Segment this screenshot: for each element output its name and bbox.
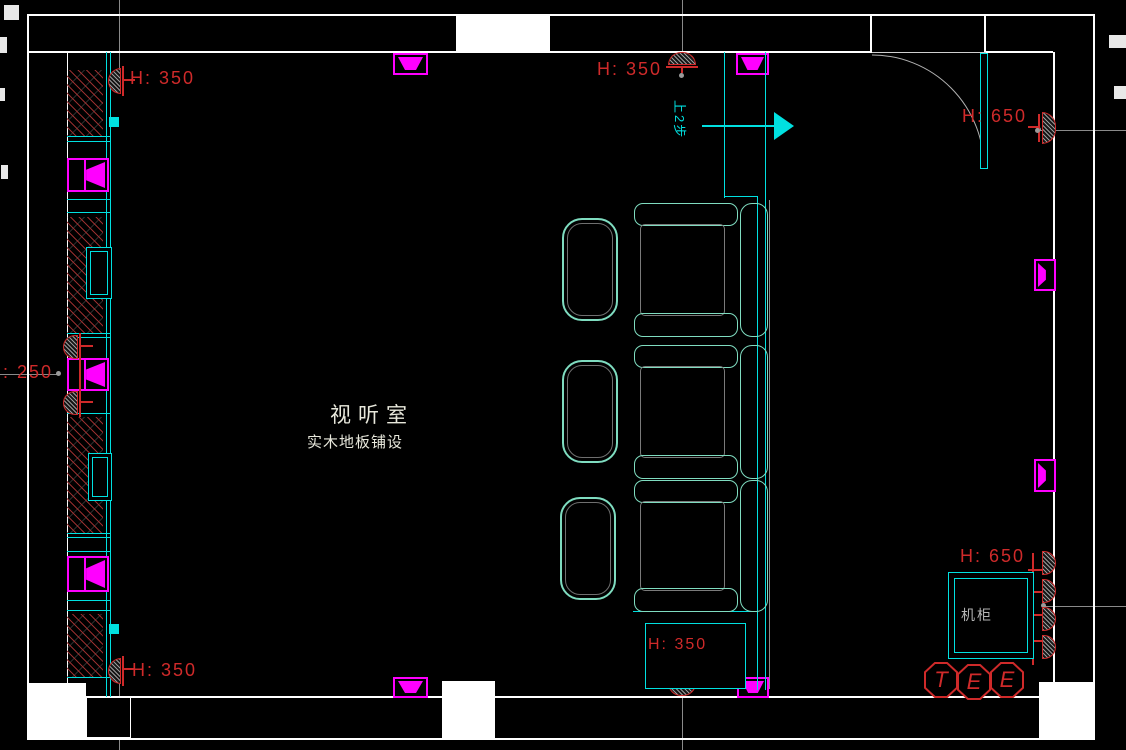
wall-hatch-block [67, 70, 103, 136]
edge-fragment [1109, 35, 1126, 48]
speaker-icon [1034, 459, 1056, 492]
edge-fragment [4, 5, 19, 20]
column-top-middle [456, 14, 550, 52]
edge-fragment [1114, 86, 1126, 99]
column-bottom-middle [442, 681, 495, 738]
speaker-icon [393, 53, 428, 75]
subwoofer-box [645, 623, 746, 689]
step-count-note: 上2步 [674, 100, 690, 144]
socket-icon-pair [63, 333, 95, 417]
speaker-icon [67, 556, 109, 592]
edge-fragment [0, 88, 5, 101]
shelf-line [67, 551, 110, 552]
wall-bottom-inner [27, 696, 1039, 698]
column-bottom-left [27, 683, 86, 738]
floor-note-label: 实木地板铺设 [307, 431, 403, 452]
tag-letter: E [967, 669, 982, 695]
switch-box [109, 624, 119, 634]
grid-line-vertical-left-top [119, 0, 120, 76]
cad-floorplan-canvas: 上2步 机柜 T E E H: 350 H: 350 H: 650 H: 250… [0, 0, 1126, 750]
grid-line-vertical-mid-bottom [682, 695, 683, 750]
socket-icon [1028, 110, 1058, 146]
height-label-top-left: H: 350 [130, 68, 195, 89]
wall-top-outer [27, 14, 1093, 16]
wall-hatch-block [67, 614, 103, 677]
tag-circle-t: T [924, 662, 958, 698]
tag-circle-e2: E [990, 662, 1024, 698]
wall-top-inner-right [986, 51, 1053, 53]
tag-letter: E [1000, 667, 1015, 693]
tag-circle-e1: E [957, 664, 991, 700]
height-label-left: H: 250 [0, 362, 53, 383]
left-wall-face-line [110, 52, 111, 697]
recliner-chair [634, 480, 768, 614]
height-label-top-right: H: 650 [962, 106, 1027, 127]
platform-back-line [769, 200, 770, 689]
shelf-line [67, 677, 110, 678]
wall-niche-inner [92, 457, 108, 497]
speaker-icon [393, 677, 428, 698]
recliner-chair [634, 203, 768, 337]
door-jamb-right [984, 14, 986, 52]
shelf-line [67, 537, 110, 538]
wall-bottom-outer [27, 738, 1095, 740]
entry-arrow-line [702, 125, 776, 127]
ottoman [560, 497, 616, 600]
socket-icon [666, 52, 698, 79]
recliner-chair [634, 345, 768, 479]
shelf-line [67, 141, 110, 142]
wall-segment-outline [86, 697, 131, 738]
edge-fragment [0, 37, 7, 53]
room-name-label: 视听室 [330, 399, 414, 429]
shelf-line [67, 600, 110, 601]
shelf-line [67, 199, 110, 200]
height-label-subwoofer: H: 350 [648, 636, 707, 654]
wall-right-outer [1093, 14, 1095, 740]
speaker-icon [1034, 259, 1056, 291]
entry-arrow-head-icon [774, 112, 794, 140]
shelf-line [67, 533, 110, 534]
edge-fragment [1, 165, 8, 179]
shelf-line [67, 212, 110, 213]
door-jamb-left [870, 14, 872, 52]
shelf-line [67, 610, 110, 611]
speaker-icon [67, 158, 109, 192]
ottoman [562, 360, 618, 463]
shelf-line [67, 136, 110, 137]
cabinet-label: 机柜 [961, 605, 993, 625]
height-label-top-middle: H: 350 [597, 59, 662, 80]
grid-node [56, 371, 61, 376]
switch-box [109, 117, 119, 127]
tag-letter: T [934, 667, 947, 693]
column-bottom-right [1039, 682, 1093, 738]
height-label-bottom-right: H: 650 [960, 546, 1025, 567]
ottoman [562, 218, 618, 321]
wall-niche-inner [90, 251, 108, 295]
wall-left-outer [27, 14, 29, 683]
height-label-bottom-left: H: 350 [132, 660, 197, 681]
step-edge-line [724, 196, 758, 197]
